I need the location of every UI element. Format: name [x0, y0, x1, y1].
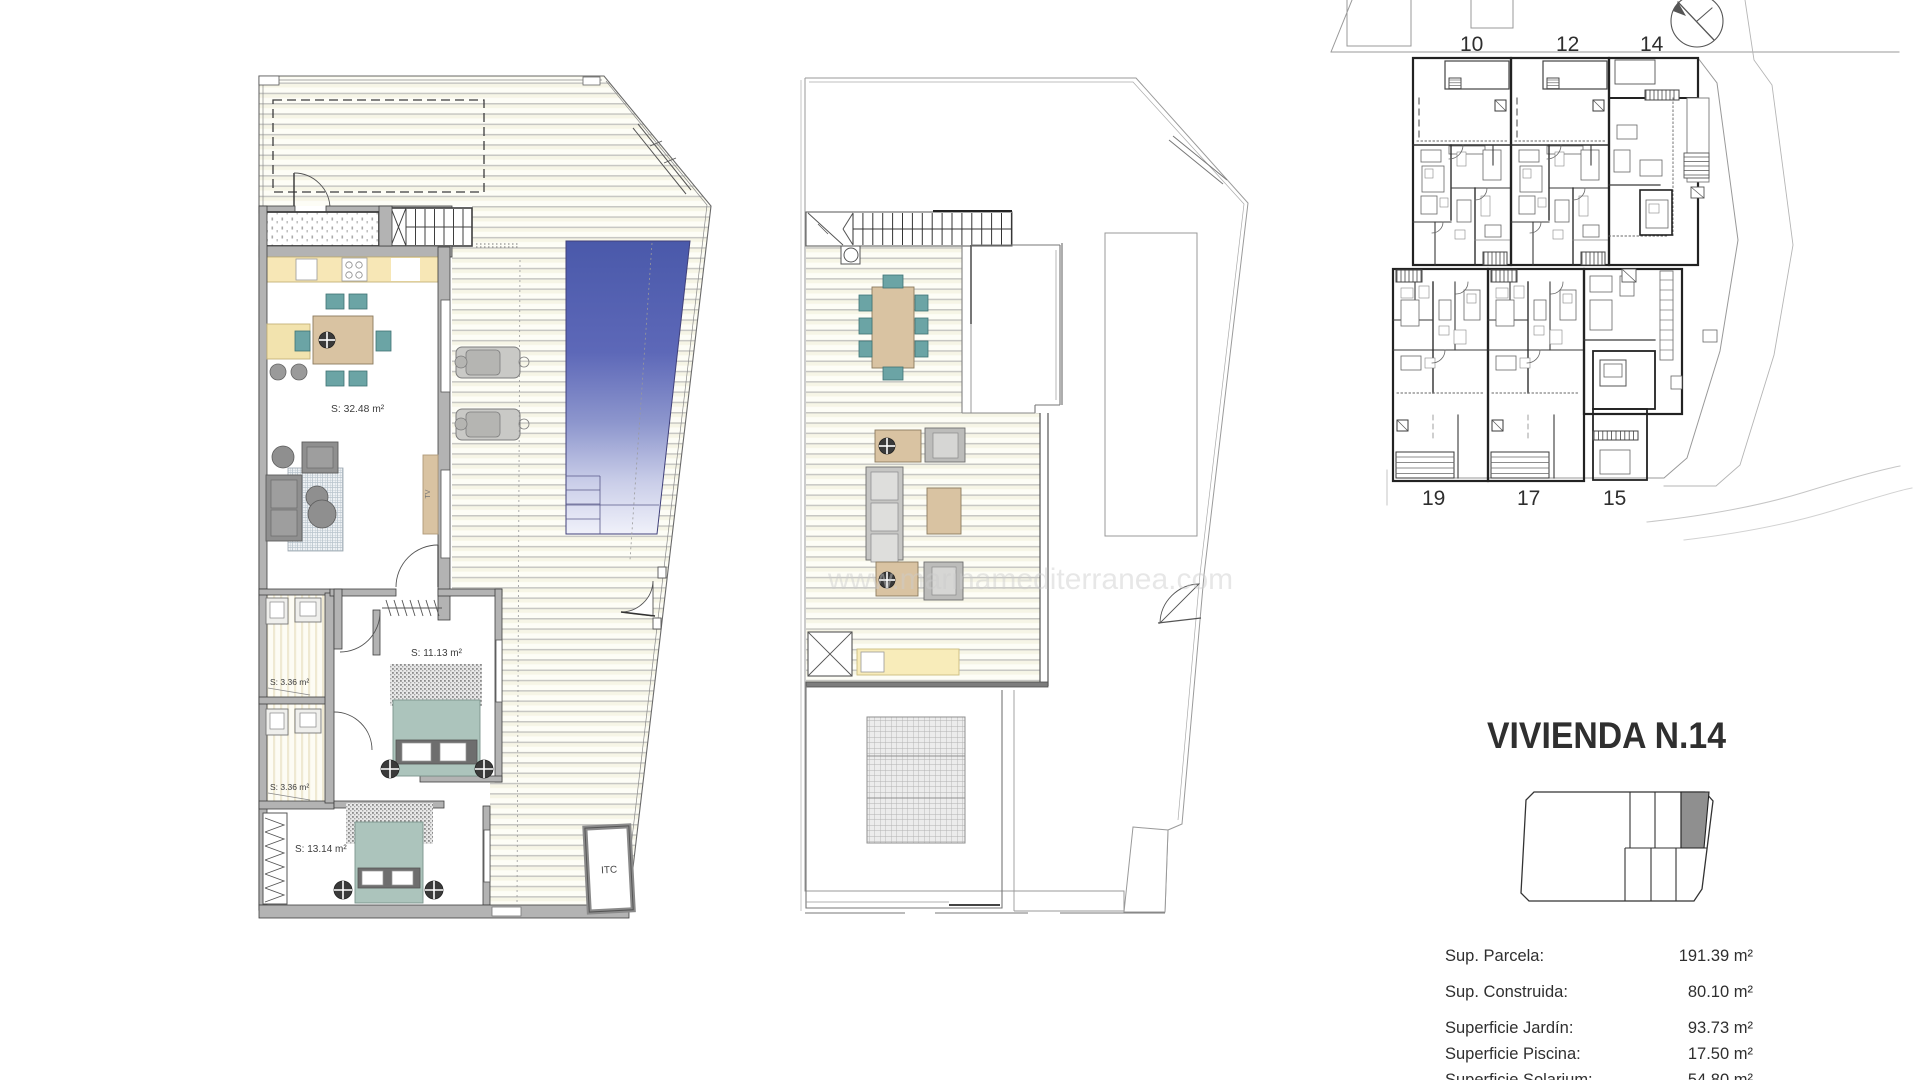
svg-text:10: 10 [1460, 33, 1483, 56]
svg-text:80.10 m²: 80.10 m² [1688, 983, 1754, 1001]
svg-text:www.marinamediterranea.com: www.marinamediterranea.com [827, 563, 1233, 596]
svg-text:14: 14 [1640, 33, 1664, 56]
svg-text:54.80 m²: 54.80 m² [1688, 1071, 1754, 1080]
svg-text:17.50 m²: 17.50 m² [1688, 1045, 1754, 1063]
svg-text:S: 3.36 m²: S: 3.36 m² [270, 782, 309, 792]
svg-text:17: 17 [1517, 487, 1540, 510]
svg-text:Superficie Piscina:: Superficie Piscina: [1445, 1045, 1581, 1063]
svg-text:15: 15 [1603, 487, 1626, 510]
svg-text:12: 12 [1556, 33, 1579, 56]
svg-text:TV: TV [425, 489, 432, 498]
svg-text:93.73 m²: 93.73 m² [1688, 1019, 1754, 1037]
svg-text:VIVIENDA N.14: VIVIENDA N.14 [1487, 715, 1726, 756]
svg-text:S: 13.14 m²: S: 13.14 m² [295, 844, 347, 855]
svg-text:ITC: ITC [601, 865, 618, 877]
svg-text:Superficie Solarium:: Superficie Solarium: [1445, 1071, 1593, 1080]
svg-text:S: 11.13 m²: S: 11.13 m² [411, 648, 463, 659]
svg-text:S: 32.48 m²: S: 32.48 m² [331, 404, 385, 415]
svg-text:Superficie Jardín:: Superficie Jardín: [1445, 1019, 1573, 1037]
svg-text:19: 19 [1422, 487, 1445, 510]
svg-text:191.39 m²: 191.39 m² [1679, 947, 1754, 965]
svg-text:S: 3.36 m²: S: 3.36 m² [270, 677, 309, 687]
svg-text:Sup. Parcela:: Sup. Parcela: [1445, 947, 1544, 965]
svg-text:Sup. Construida:: Sup. Construida: [1445, 983, 1568, 1001]
